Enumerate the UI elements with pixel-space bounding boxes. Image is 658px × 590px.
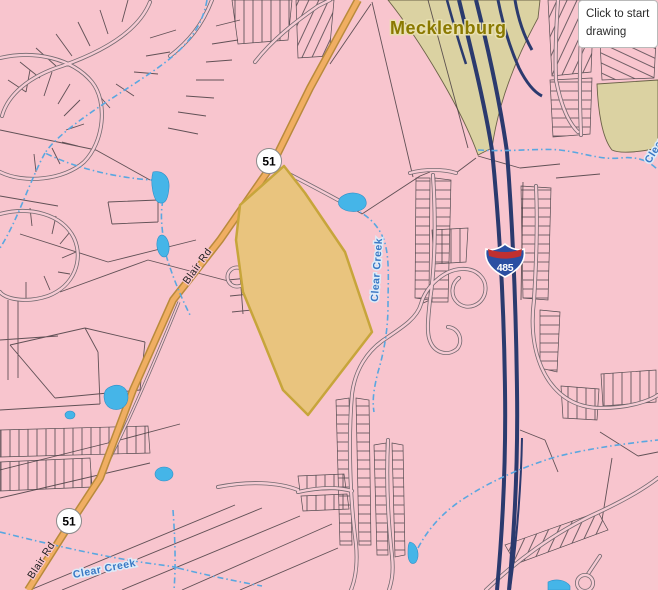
route-51-shield-top-label: 51: [262, 155, 276, 169]
route-51-shield-bottom-label: 51: [62, 515, 76, 529]
drawing-instruction-tooltip: Click to start drawing: [578, 0, 658, 48]
map-viewport[interactable]: 51 51 485 Mecklenburg Blair Rd Blair Rd …: [0, 0, 658, 590]
interstate-485-shield-label: 485: [497, 262, 514, 274]
route-51-shield-top: 51: [257, 149, 282, 174]
county-name-label: Mecklenburg: [390, 18, 507, 38]
map-canvas[interactable]: 51 51 485 Mecklenburg Blair Rd Blair Rd …: [0, 0, 658, 590]
route-51-shield-bottom: 51: [57, 509, 82, 534]
